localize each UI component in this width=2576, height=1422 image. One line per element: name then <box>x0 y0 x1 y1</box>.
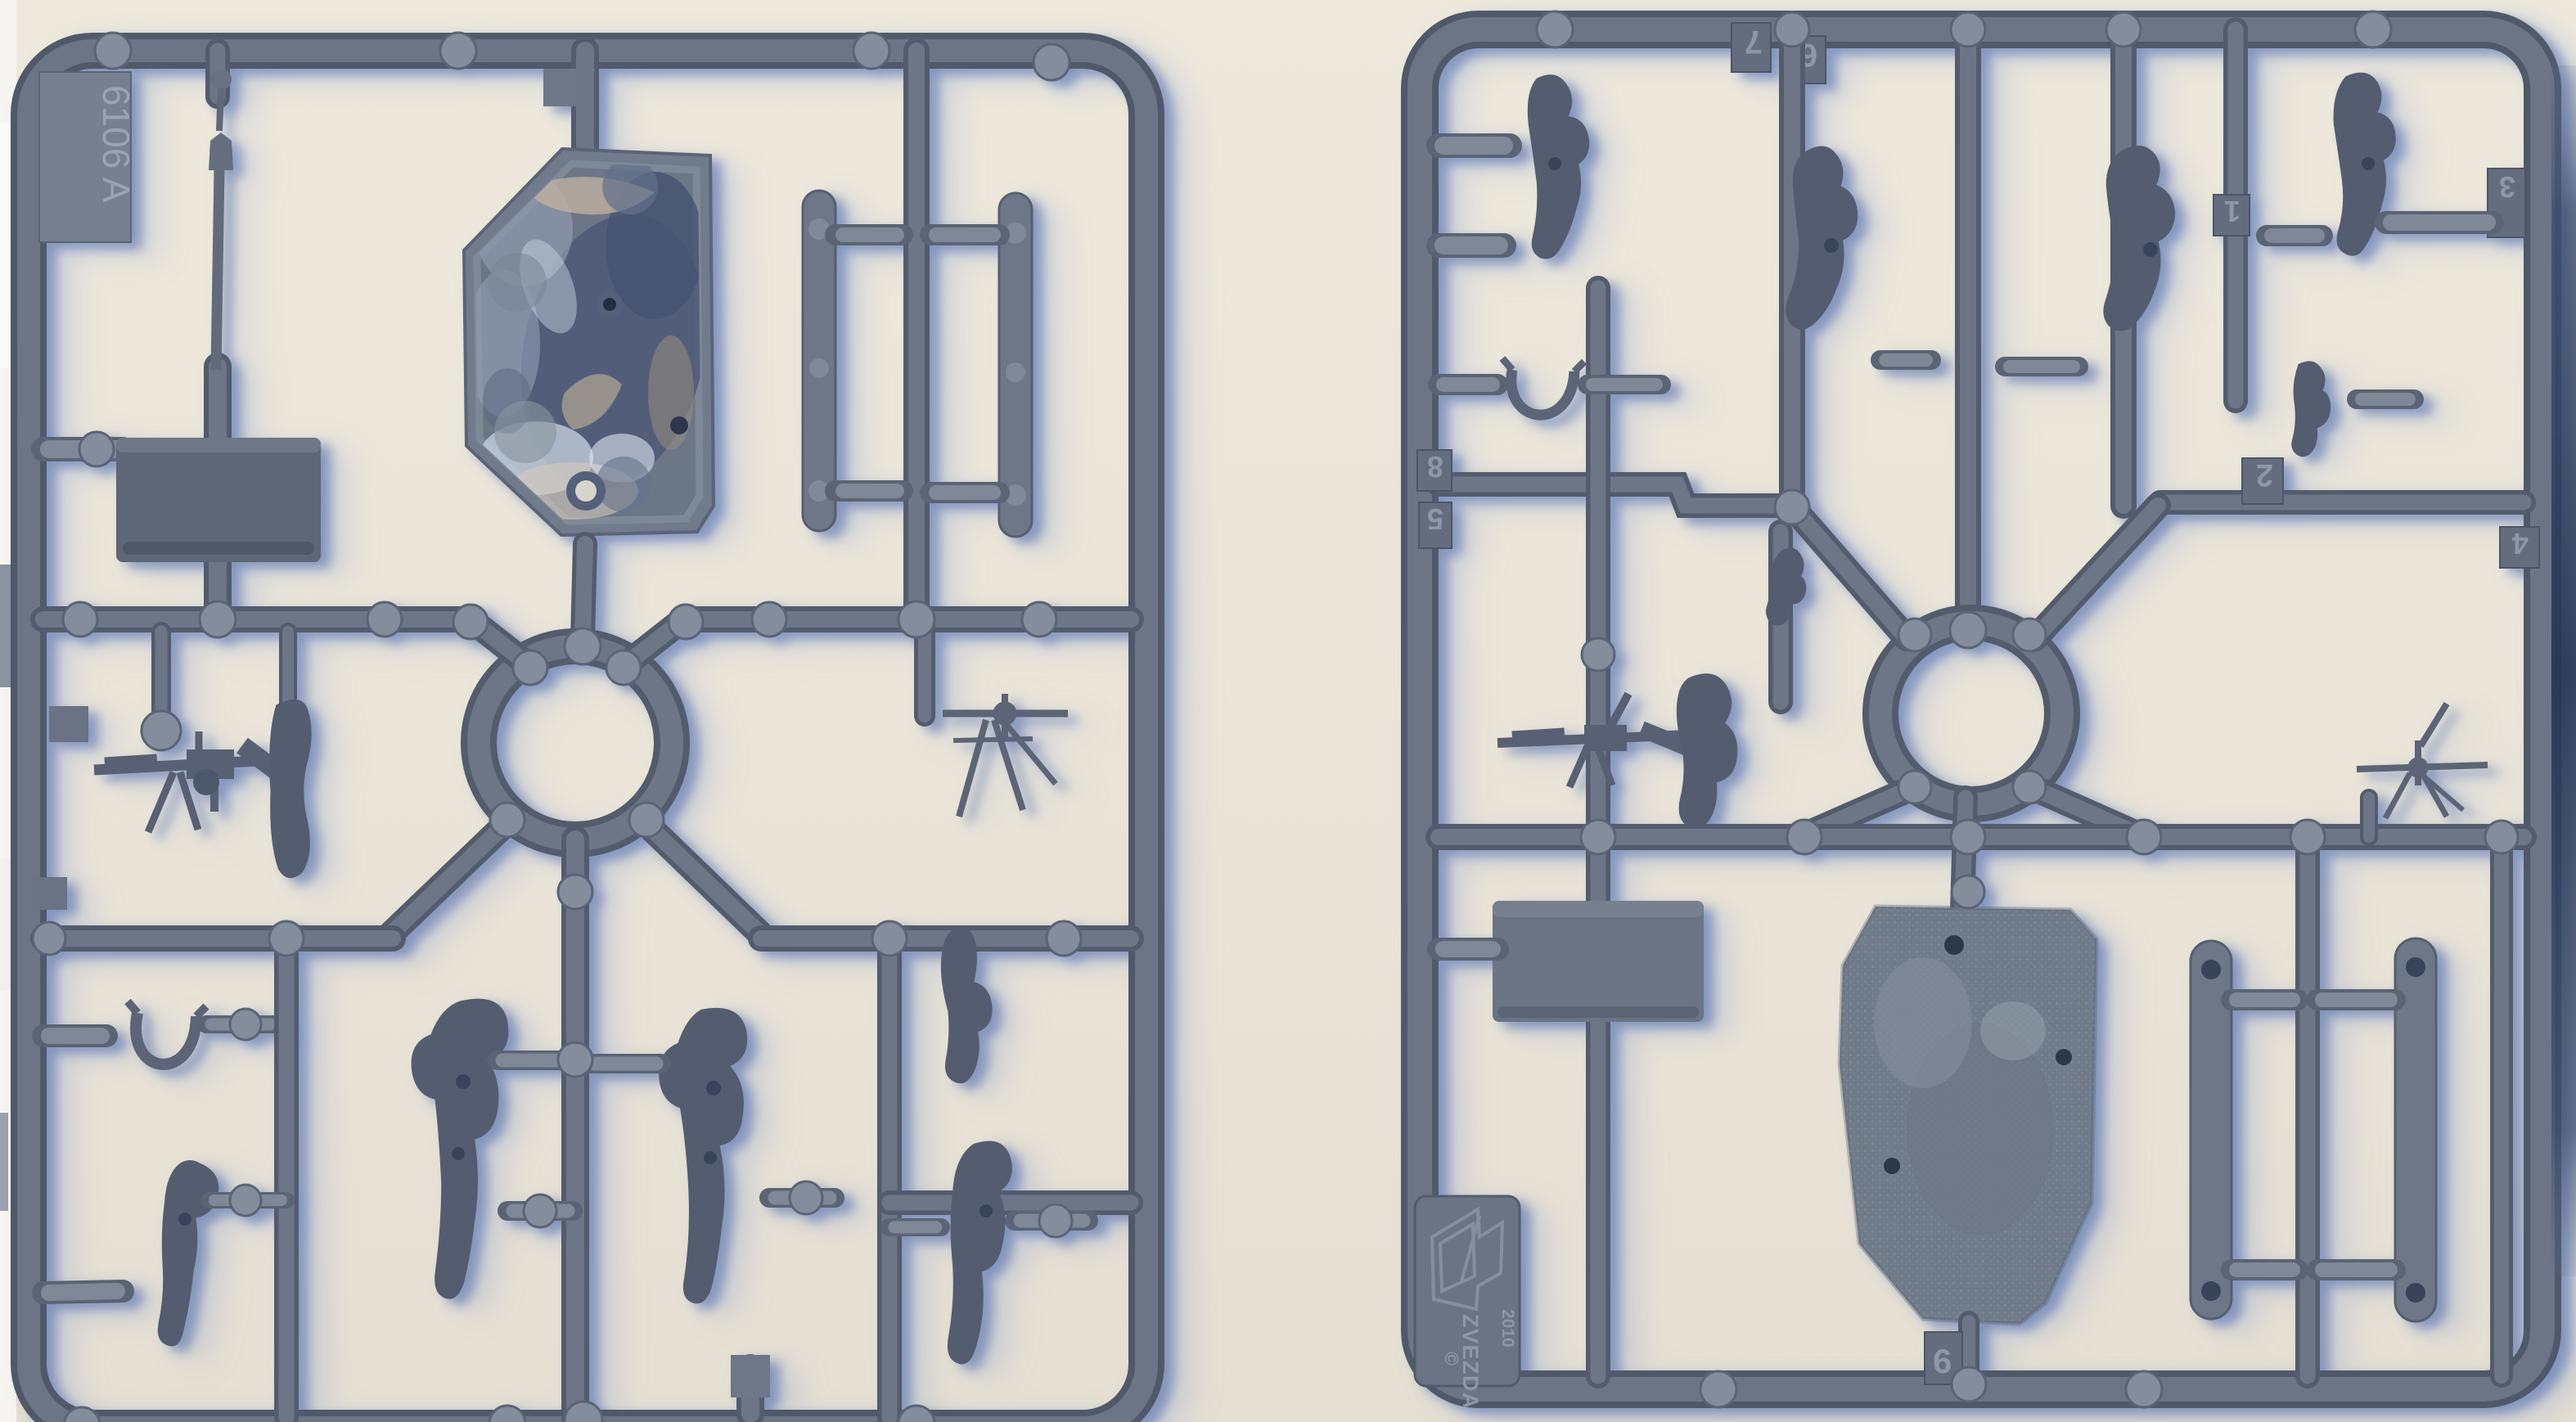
svg-text:6106 A: 6106 A <box>95 85 137 203</box>
svg-text:8: 8 <box>1427 450 1443 484</box>
svg-text:©: © <box>1441 1352 1462 1366</box>
svg-text:1: 1 <box>2224 195 2240 228</box>
svg-text:3: 3 <box>2499 170 2515 204</box>
svg-text:2010: 2010 <box>1498 1309 1517 1348</box>
svg-text:6: 6 <box>1933 1342 1952 1380</box>
svg-text:2: 2 <box>2256 457 2273 492</box>
svg-text:7: 7 <box>1745 24 1763 60</box>
svg-text:5: 5 <box>1427 502 1443 536</box>
svg-text:4: 4 <box>2512 527 2529 560</box>
